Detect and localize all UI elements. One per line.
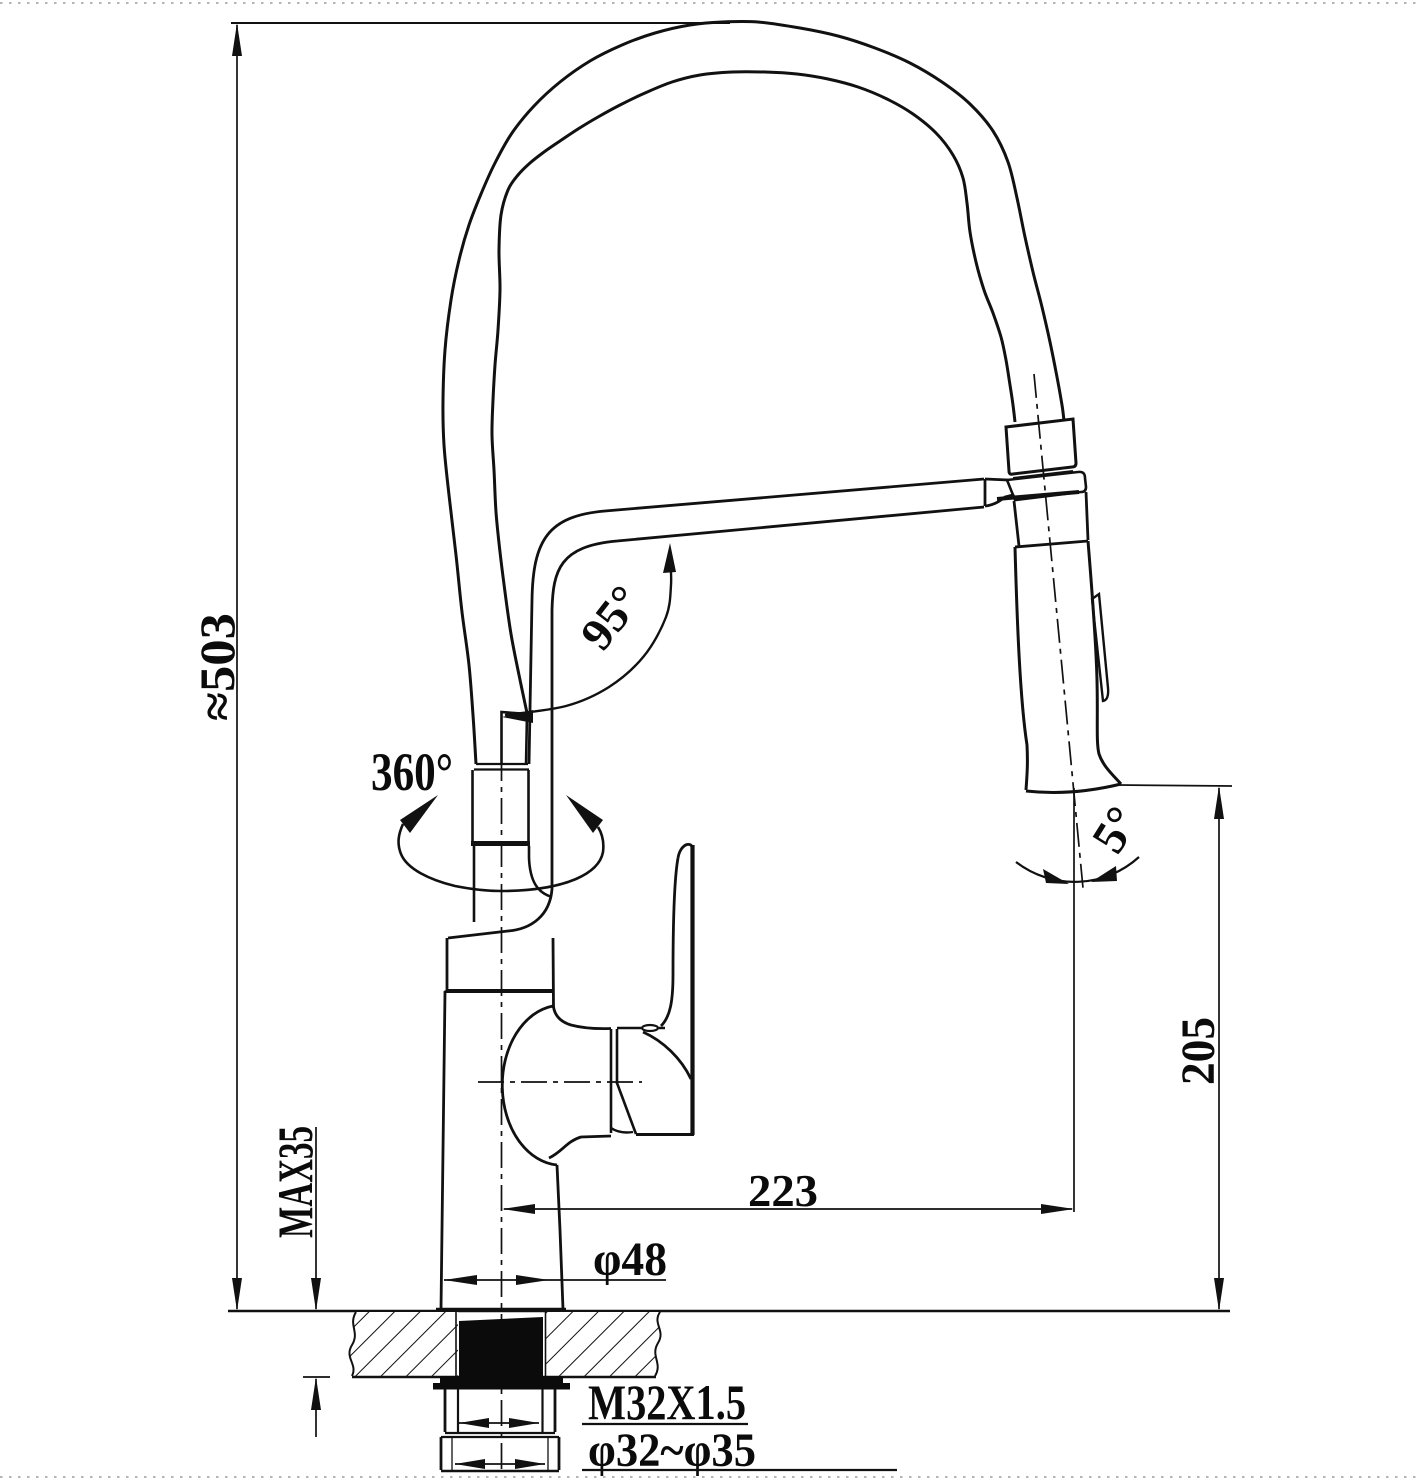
svg-text:360°: 360° — [371, 742, 453, 802]
svg-text:5°: 5° — [1082, 797, 1150, 862]
svg-text:φ48: φ48 — [593, 1233, 667, 1286]
svg-text:223: 223 — [748, 1165, 818, 1216]
svg-text:≈503: ≈503 — [189, 613, 245, 721]
svg-text:MAX35: MAX35 — [267, 1126, 323, 1238]
svg-text:205: 205 — [1172, 1017, 1225, 1085]
svg-text:M32X1.5: M32X1.5 — [588, 1374, 746, 1430]
svg-text:95°: 95° — [570, 576, 651, 659]
